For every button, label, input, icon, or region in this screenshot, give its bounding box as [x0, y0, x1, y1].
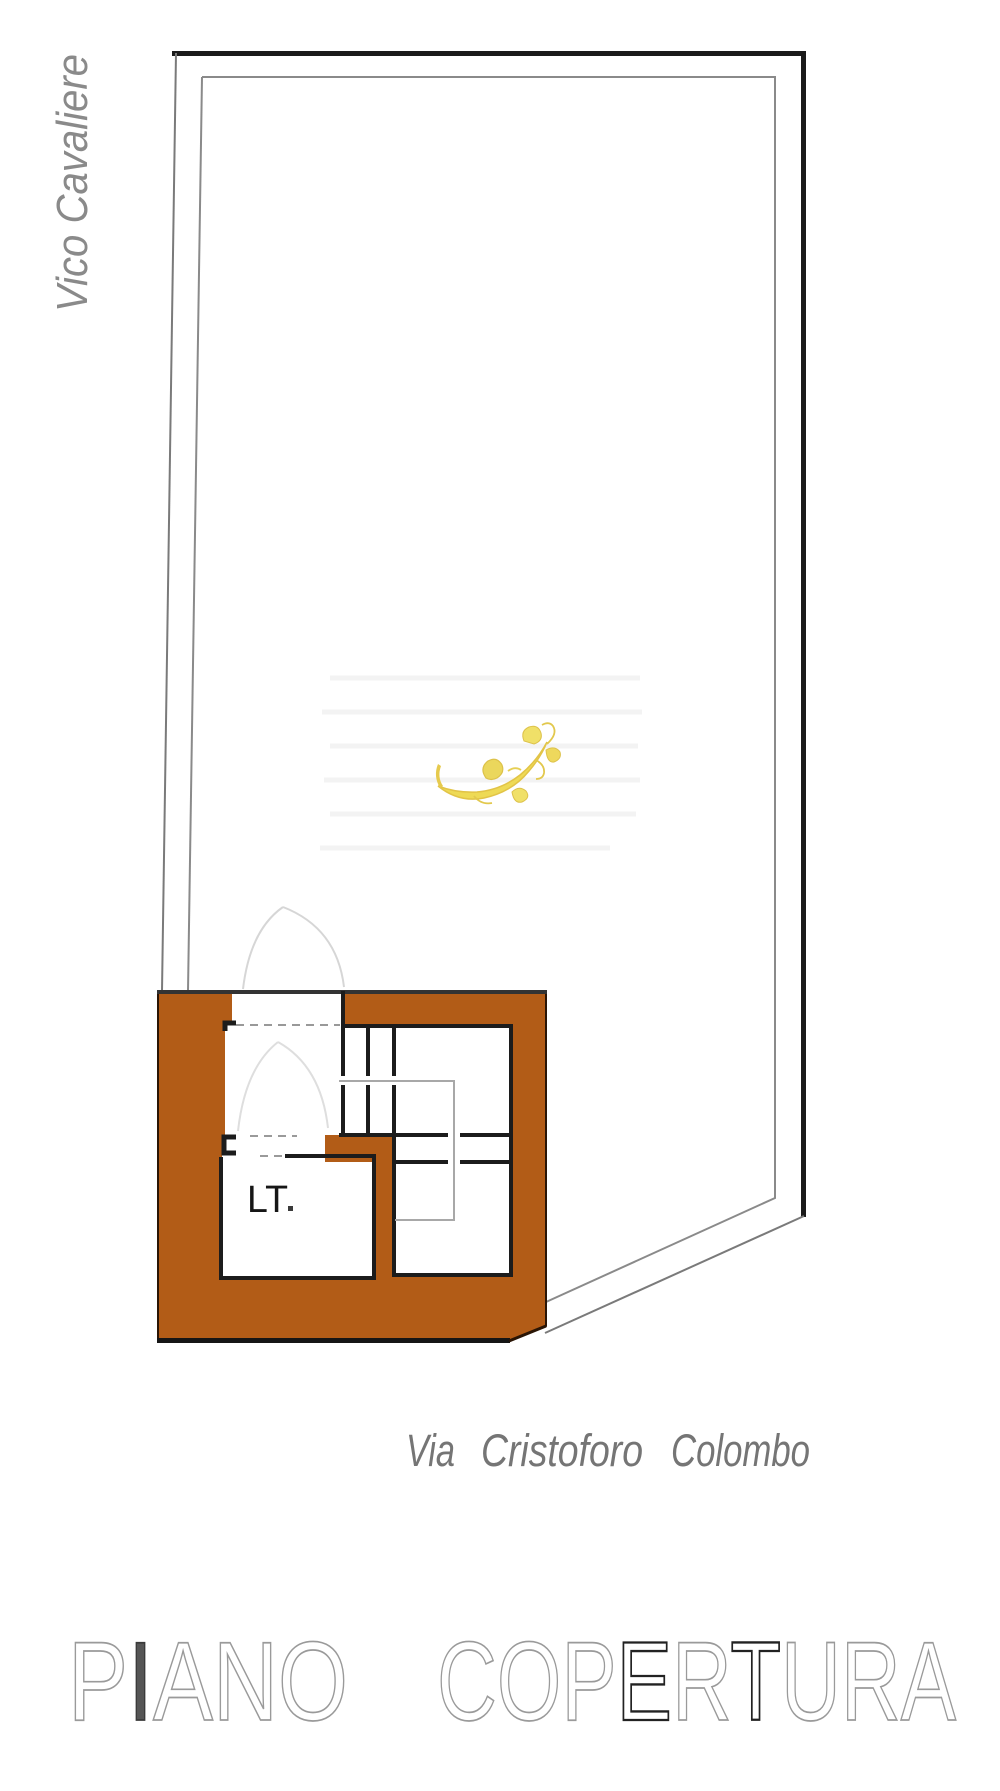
svg-text:LT: LT — [247, 1179, 288, 1221]
svg-text:Colombo: Colombo — [671, 1425, 810, 1476]
svg-text:Via: Via — [406, 1425, 455, 1476]
svg-text:PIANO: PIANO — [68, 1619, 348, 1744]
svg-text:Vico Cavaliere: Vico Cavaliere — [48, 54, 97, 312]
svg-text:COPERTURA: COPERTURA — [437, 1619, 956, 1744]
svg-text:Cristoforo: Cristoforo — [481, 1425, 643, 1476]
